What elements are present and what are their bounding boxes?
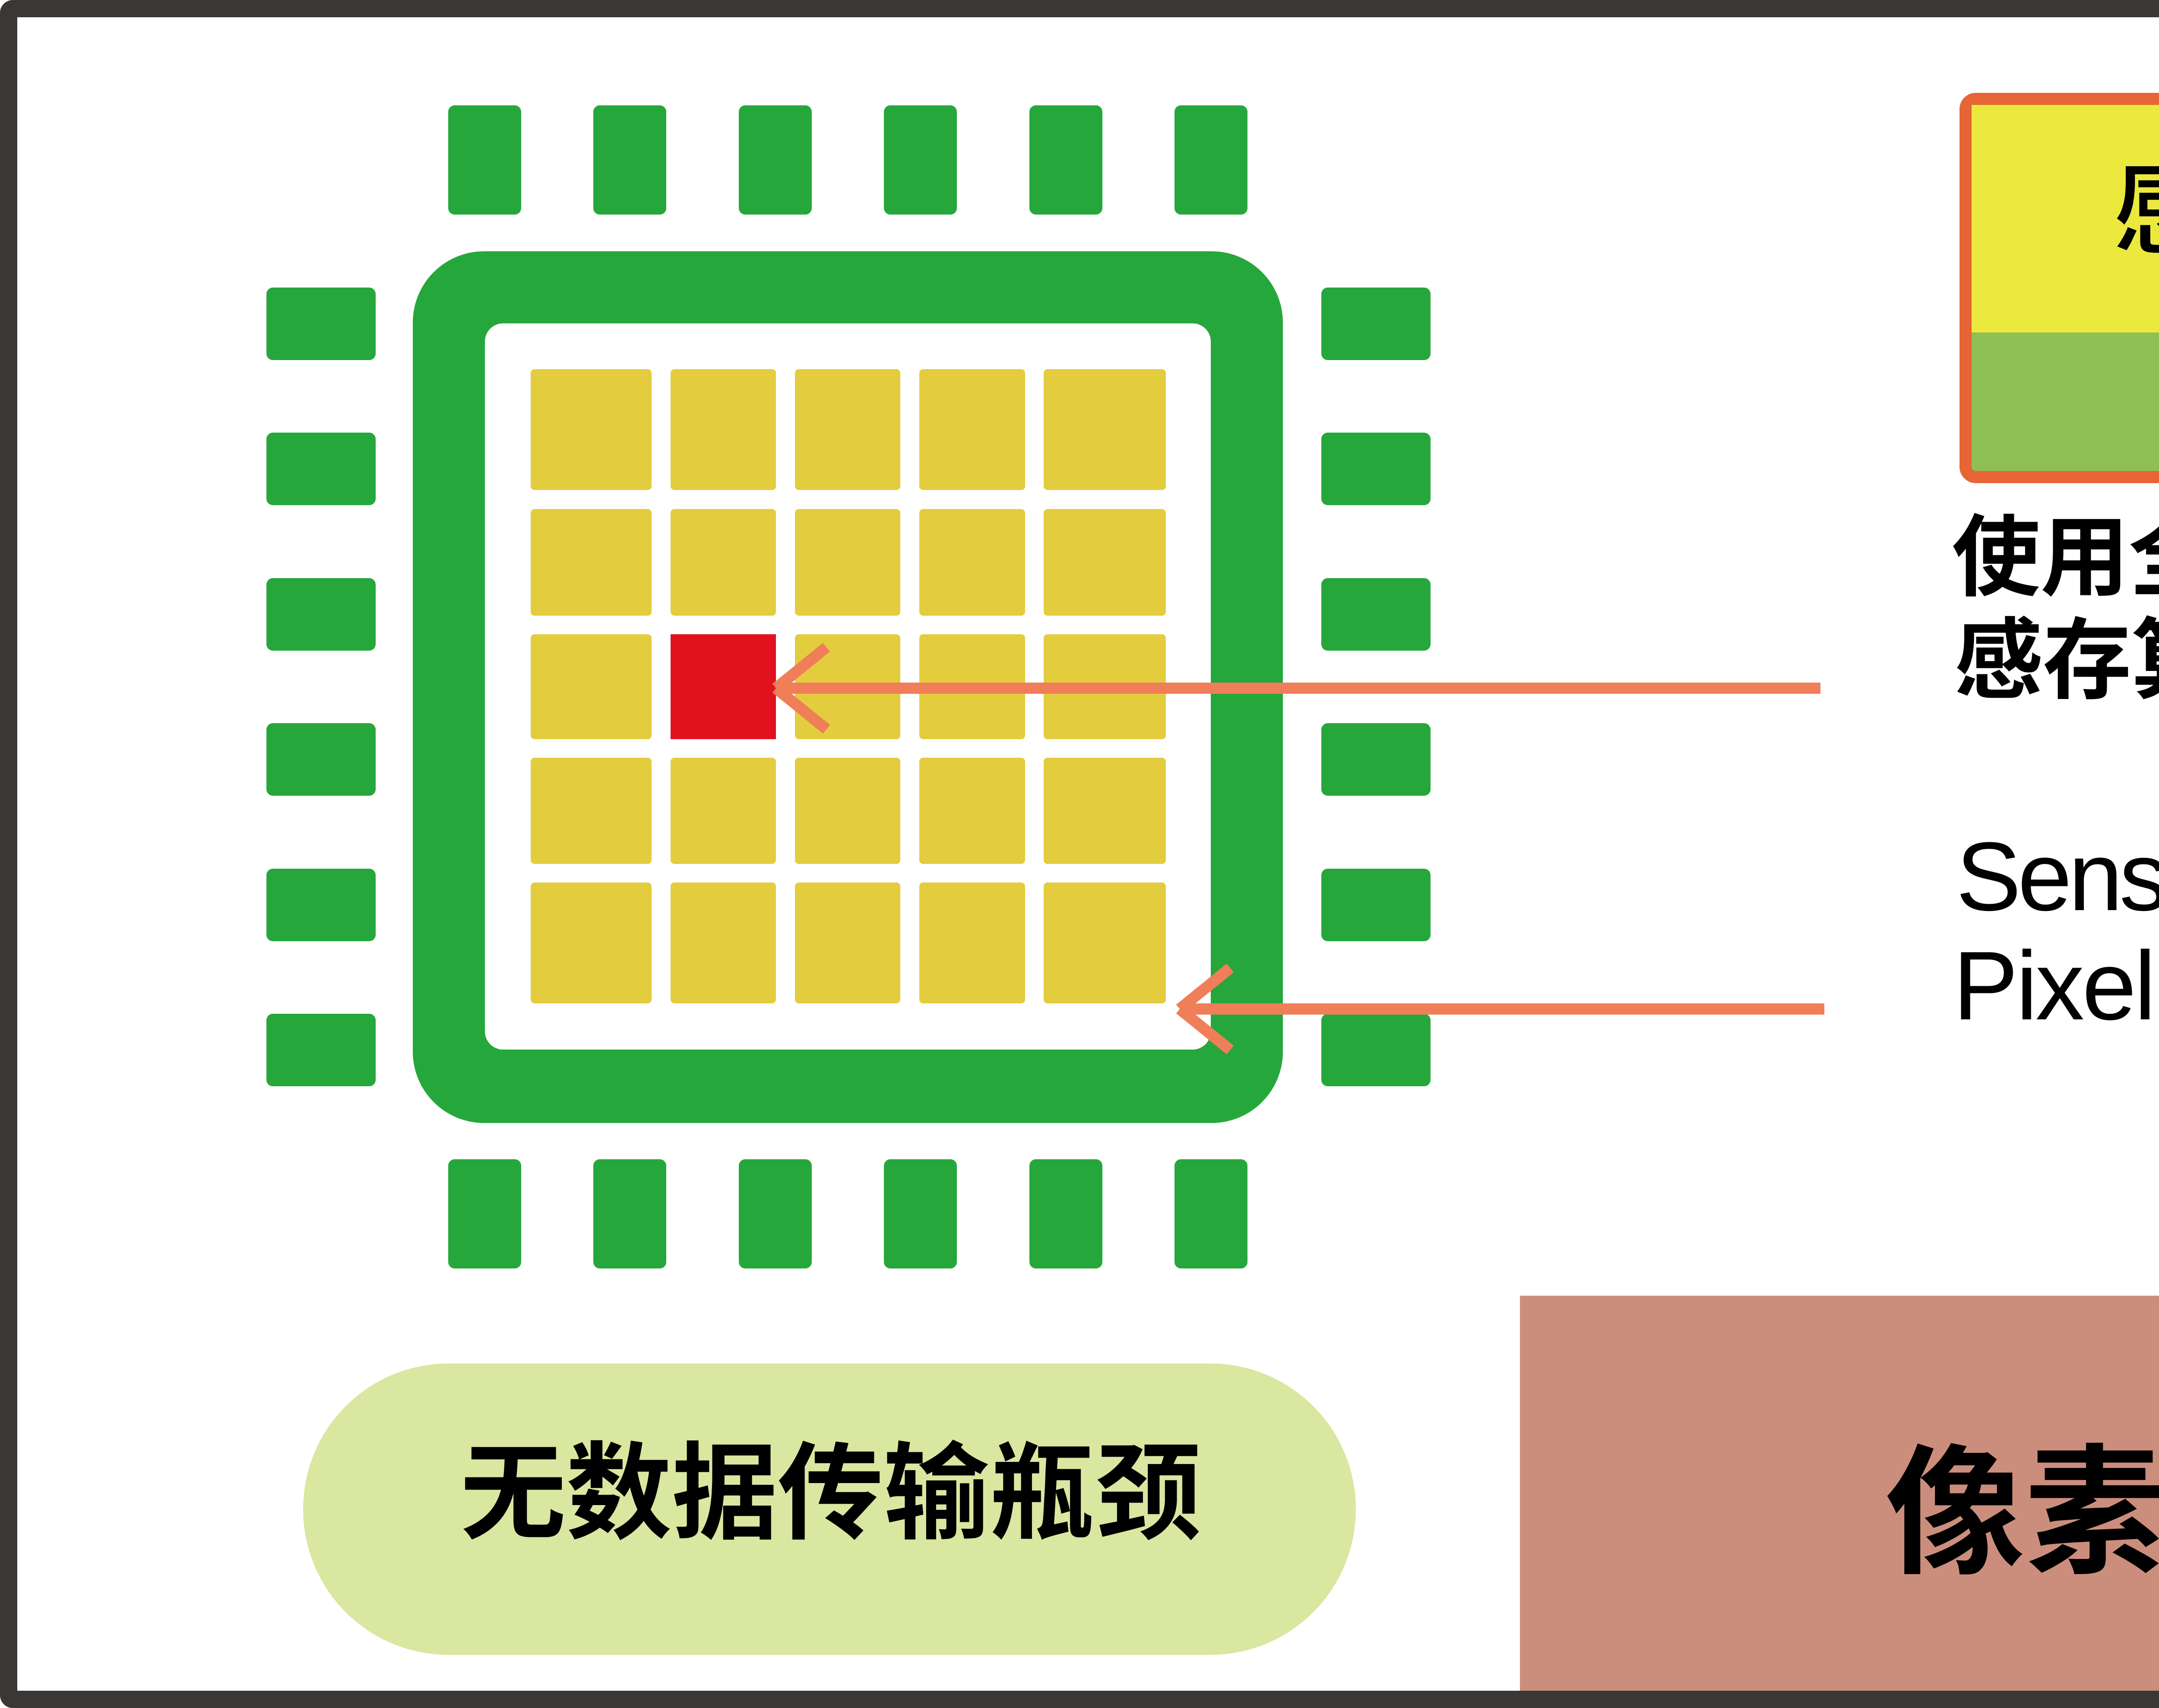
svg-text:Pixel Array: Pixel Array bbox=[1953, 931, 2159, 1040]
svg-text:Sensor: Sensor bbox=[1956, 822, 2159, 931]
